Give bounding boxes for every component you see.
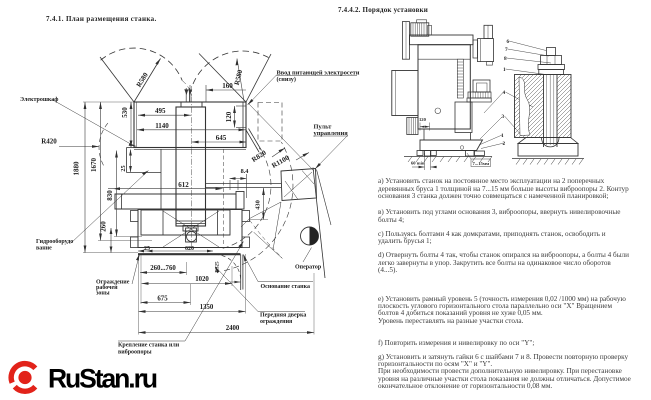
svg-text:6: 6 — [507, 39, 510, 45]
svg-text:R580: R580 — [233, 69, 245, 87]
svg-text:675: 675 — [157, 295, 168, 302]
svg-text:7: 7 — [505, 47, 508, 53]
svg-text:1020: 1020 — [195, 276, 209, 283]
svg-text:7...15мм: 7...15мм — [473, 161, 490, 166]
svg-text:620: 620 — [185, 246, 194, 252]
svg-text:Основание станка: Основание станка — [261, 284, 310, 290]
svg-text:управления: управления — [314, 130, 349, 137]
svg-text:ограждения: ограждения — [260, 319, 293, 325]
svg-text:1880: 1880 — [73, 161, 81, 176]
svg-text:Электрошкаф: Электрошкаф — [20, 96, 58, 103]
svg-text:вание: вание — [36, 245, 52, 251]
svg-text:3: 3 — [502, 114, 505, 120]
svg-text:Передняя дверка: Передняя дверка — [260, 313, 306, 319]
svg-text:R820: R820 — [250, 148, 268, 163]
svg-text:260...760: 260...760 — [150, 265, 176, 272]
svg-text:1350: 1350 — [200, 304, 214, 311]
svg-text:120: 120 — [419, 117, 427, 122]
svg-text:612: 612 — [178, 181, 189, 189]
svg-text:1: 1 — [503, 67, 506, 73]
svg-text:Крепление станка или: Крепление станка или — [118, 343, 180, 349]
svg-text:R420: R420 — [41, 138, 57, 146]
svg-text:1: 1 — [501, 133, 504, 139]
svg-text:495: 495 — [155, 107, 166, 115]
svg-text:8.4: 8.4 — [241, 168, 249, 175]
svg-text:виброопоры: виброопоры — [118, 348, 152, 355]
svg-text:25: 25 — [120, 165, 127, 171]
svg-text:Оператор: Оператор — [295, 265, 322, 271]
svg-text:4: 4 — [503, 90, 506, 96]
svg-text:2400: 2400 — [226, 325, 240, 332]
svg-text:25: 25 — [144, 246, 150, 252]
svg-text:2: 2 — [503, 141, 506, 147]
svg-text:зоны: зоны — [96, 291, 110, 297]
svg-text:R325: R325 — [216, 261, 221, 273]
svg-text:60 min: 60 min — [411, 161, 425, 166]
svg-text:160: 160 — [222, 82, 233, 90]
svg-text:260: 260 — [100, 221, 108, 232]
svg-text:530: 530 — [121, 107, 129, 118]
svg-text:(снизу): (снизу) — [277, 76, 296, 83]
svg-text:Гидрооборудо: Гидрооборудо — [36, 238, 73, 245]
svg-text:645: 645 — [216, 134, 227, 142]
svg-text:1140: 1140 — [155, 122, 169, 130]
svg-text:1670: 1670 — [90, 158, 98, 173]
svg-text:120: 120 — [225, 111, 233, 122]
svg-text:830: 830 — [106, 190, 114, 201]
svg-text:8: 8 — [504, 56, 507, 62]
svg-text:430: 430 — [255, 200, 262, 210]
